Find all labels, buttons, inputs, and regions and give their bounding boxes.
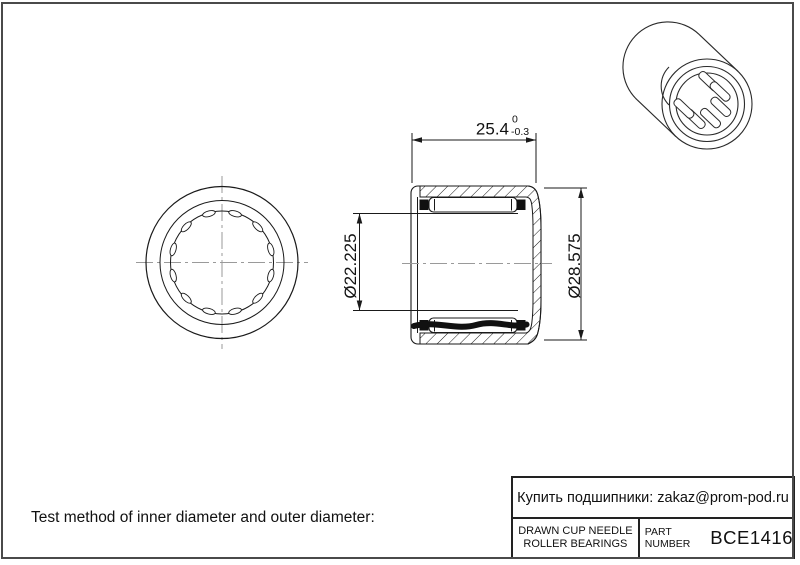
drawing-sheet: 25.4 0 -0.3 Ø22.225 Ø28.575 — [0, 0, 800, 565]
sheet-border — [1, 2, 794, 559]
